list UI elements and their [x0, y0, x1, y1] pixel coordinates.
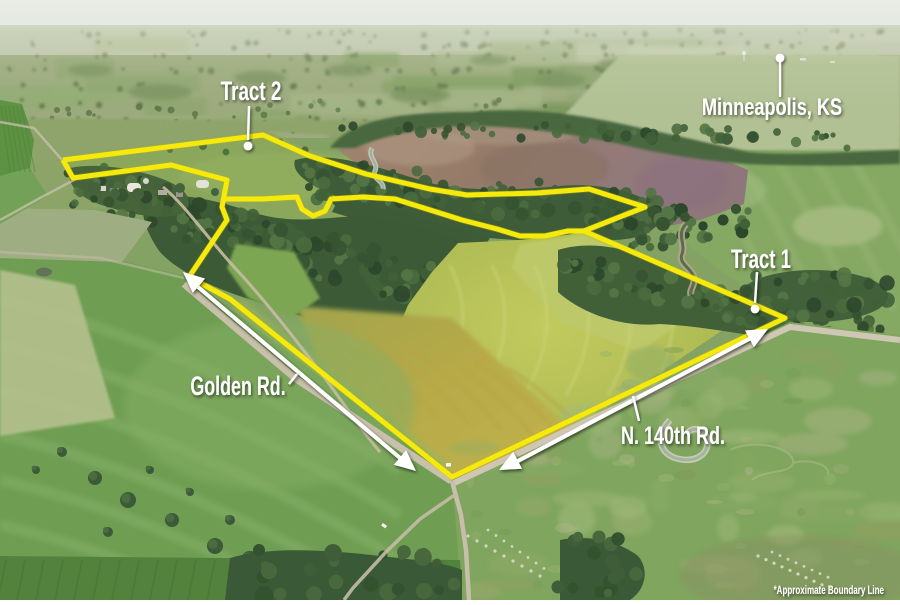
- svg-text:Tract 1: Tract 1: [731, 244, 791, 274]
- svg-text:Tract 2: Tract 2: [221, 76, 282, 106]
- svg-text:Minneapolis, KS: Minneapolis, KS: [702, 94, 842, 121]
- svg-text:N. 140th Rd.: N. 140th Rd.: [621, 421, 725, 450]
- svg-text:Golden Rd.: Golden Rd.: [190, 372, 285, 401]
- svg-text:*Approximate Boundary Line: *Approximate Boundary Line: [774, 585, 885, 598]
